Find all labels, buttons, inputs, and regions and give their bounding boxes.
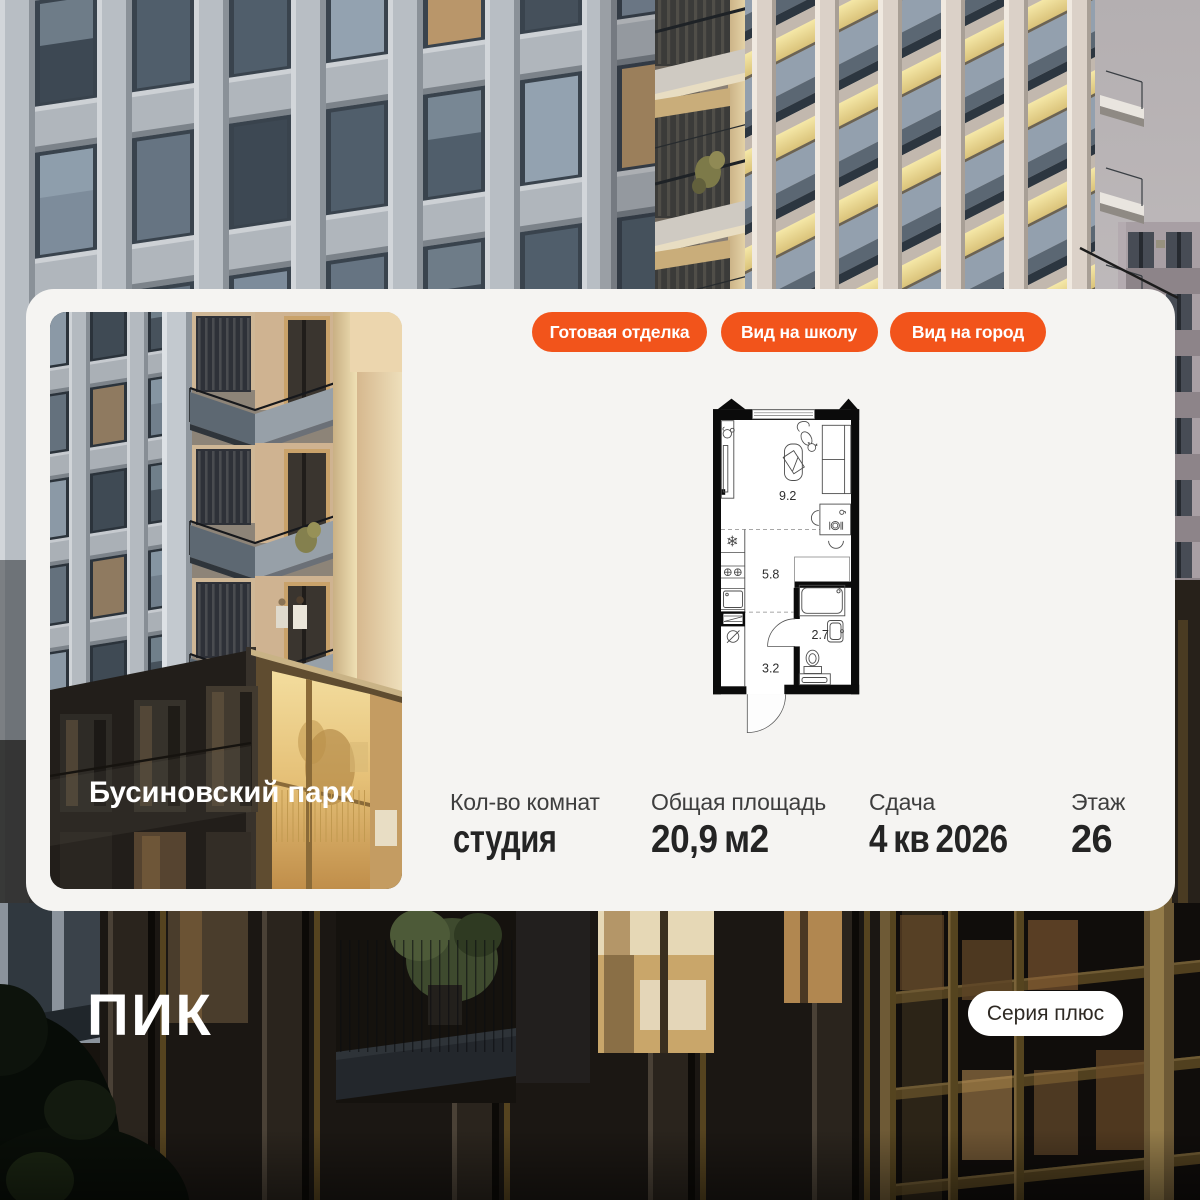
svg-text:Бусиновский парк: Бусиновский парк: [89, 776, 354, 809]
svg-text:9.2: 9.2: [779, 489, 796, 503]
svg-text:5.8: 5.8: [762, 568, 779, 582]
svg-text:3.2: 3.2: [762, 662, 779, 676]
svg-text:2.7: 2.7: [812, 628, 829, 642]
